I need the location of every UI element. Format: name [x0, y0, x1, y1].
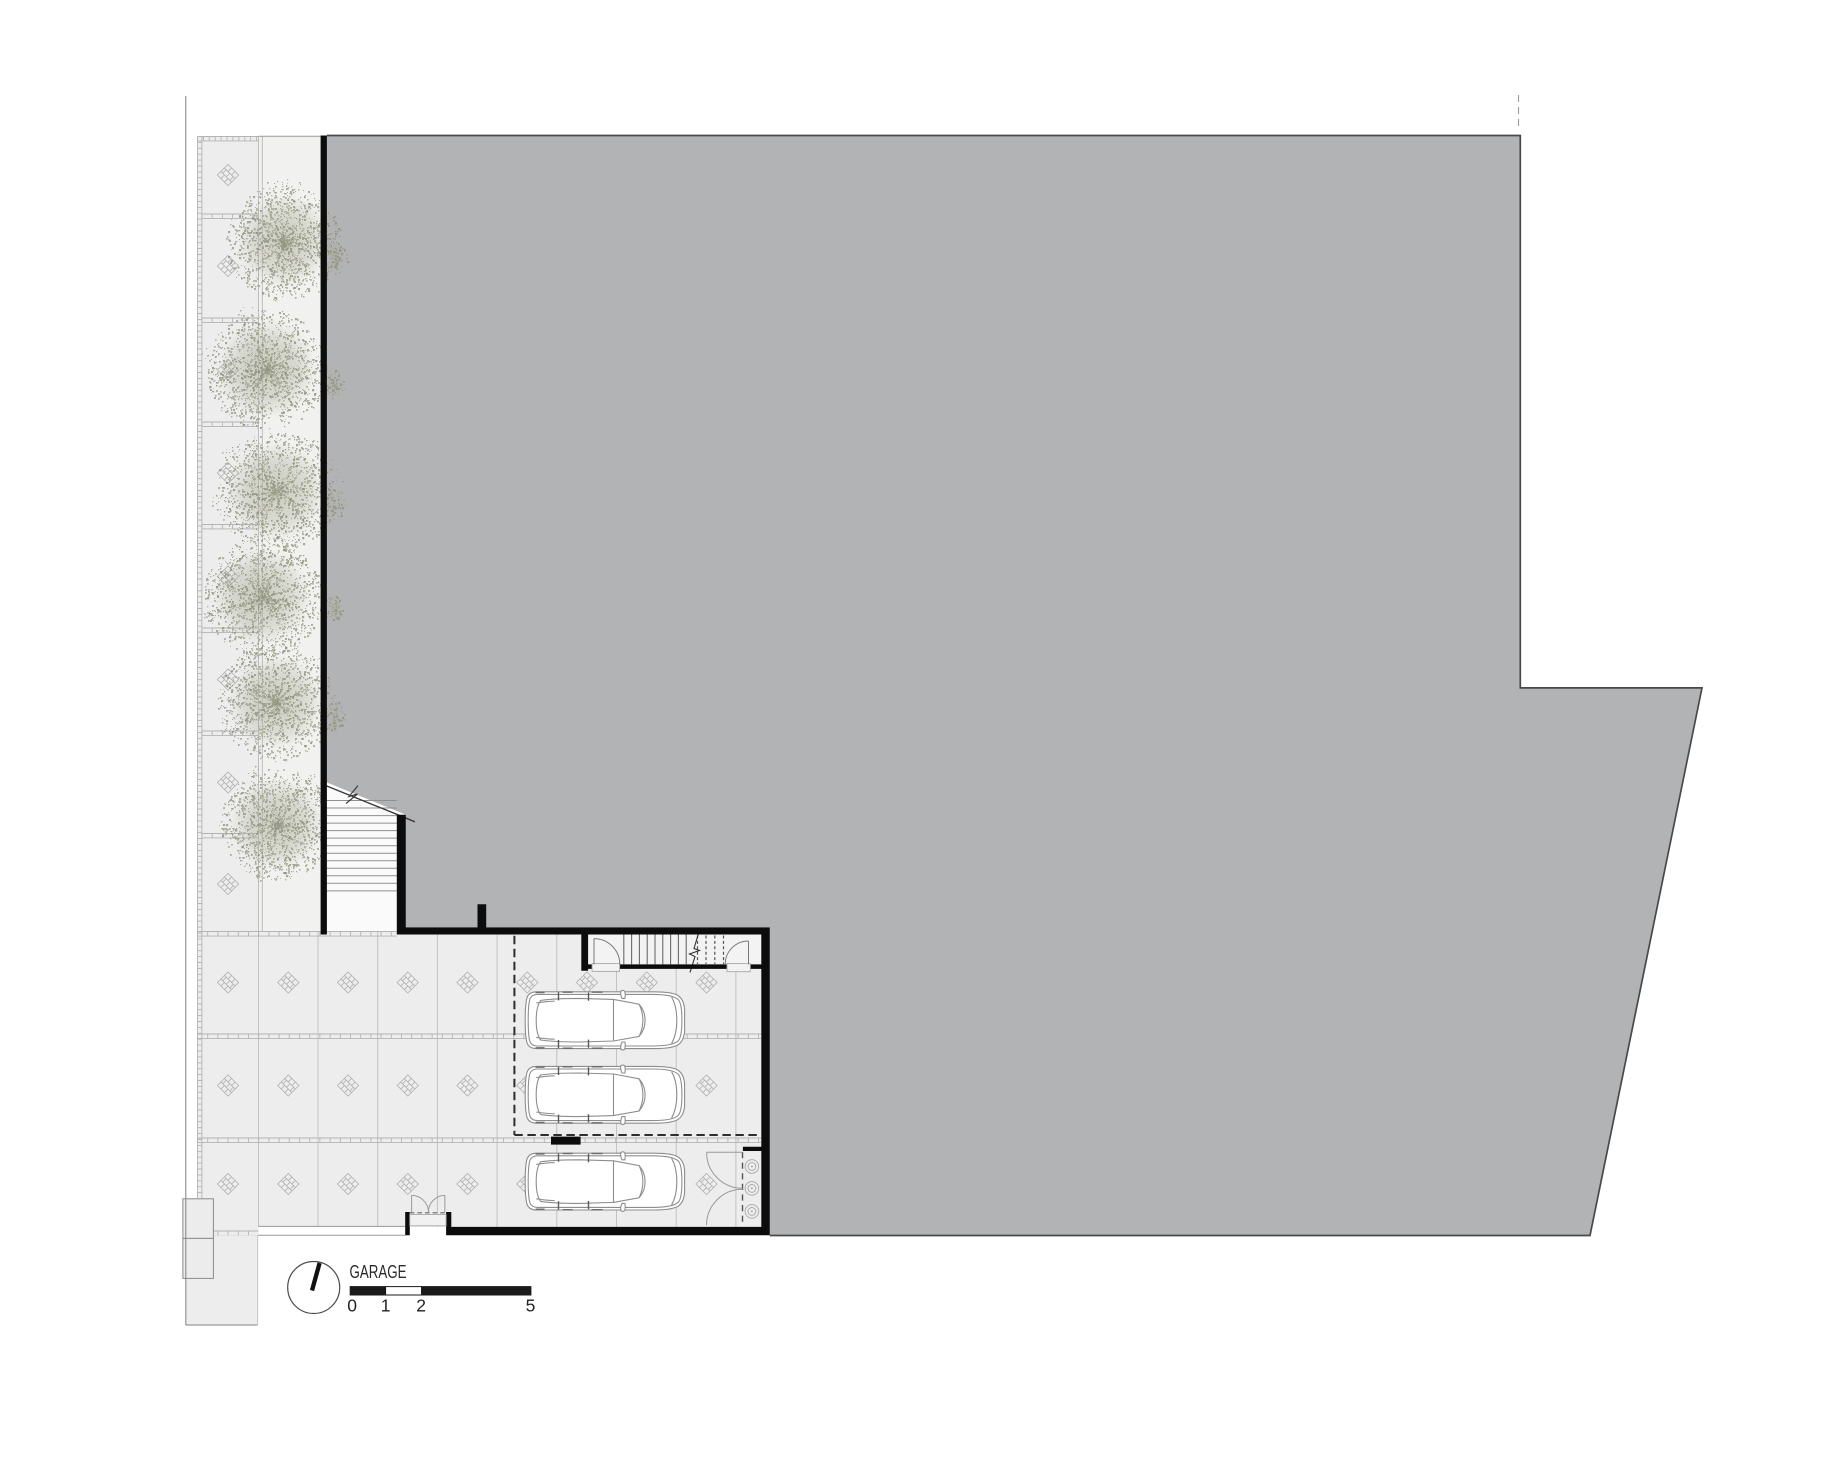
svg-text:1: 1 [381, 1295, 391, 1315]
svg-text:2: 2 [416, 1295, 426, 1315]
svg-text:GARAGE: GARAGE [350, 1261, 407, 1282]
svg-text:5: 5 [526, 1295, 536, 1315]
svg-text:0: 0 [347, 1295, 357, 1315]
